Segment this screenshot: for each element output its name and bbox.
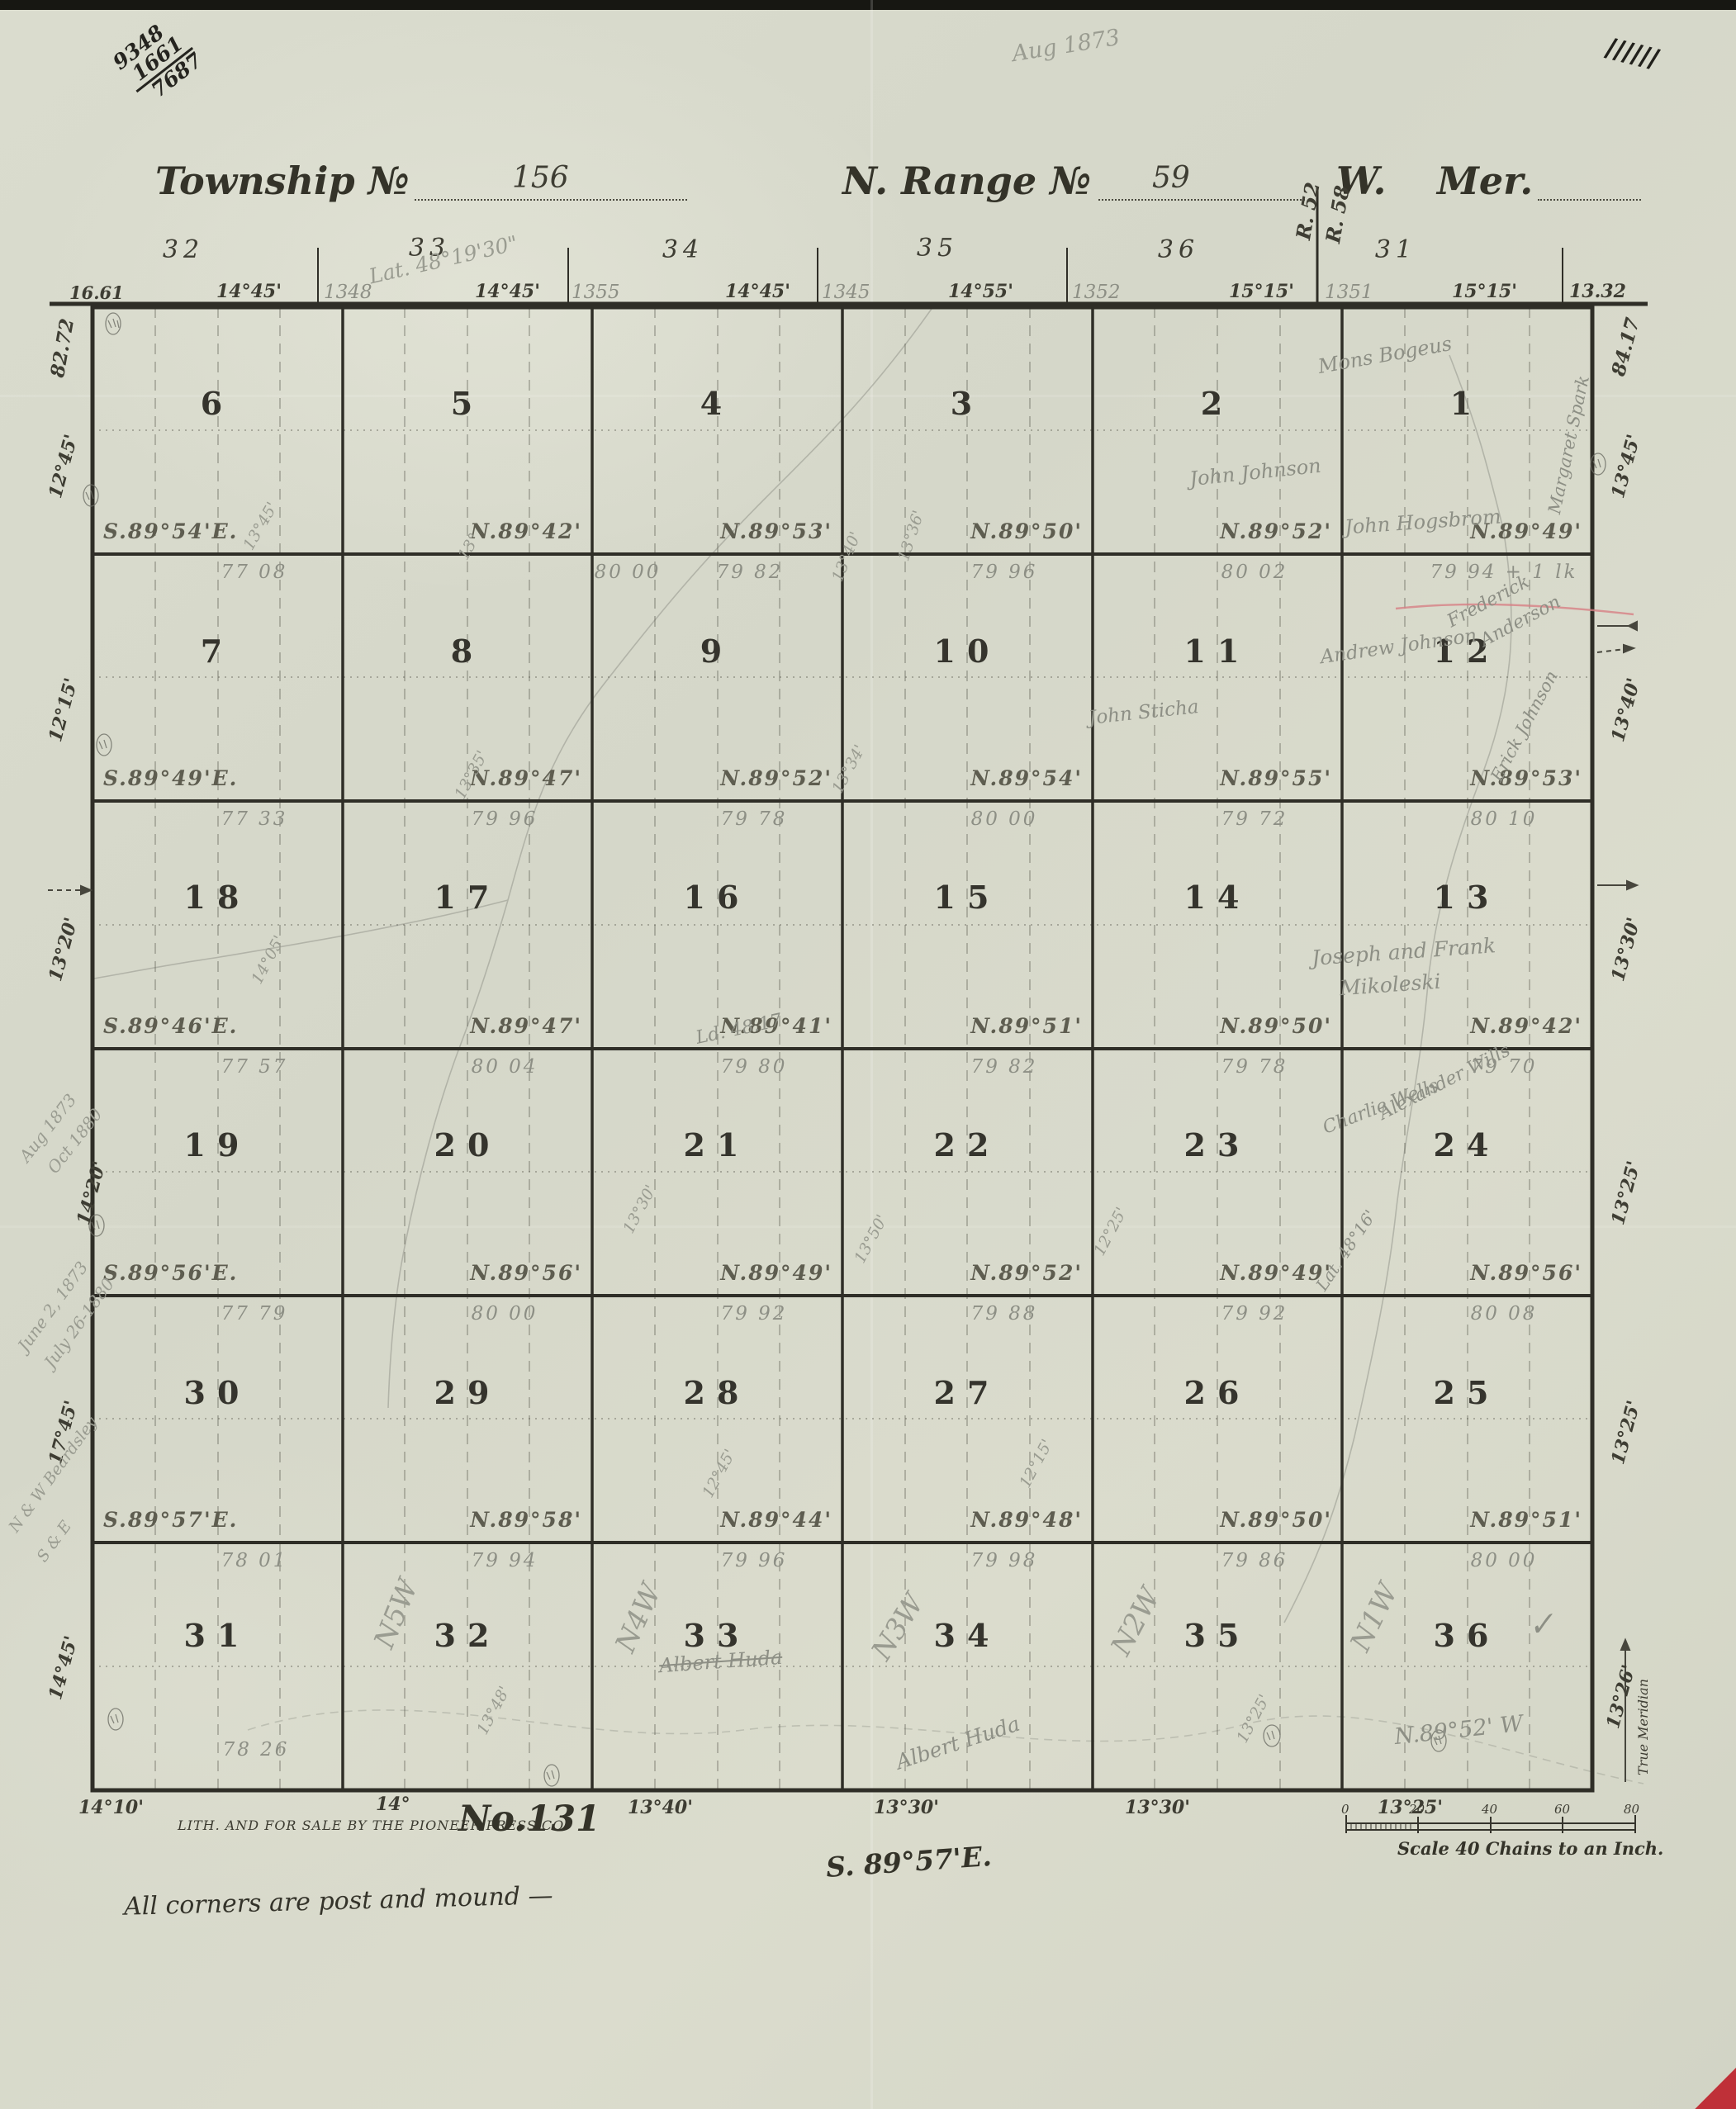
section-number: 35 (1184, 1620, 1251, 1652)
section-number: 3 (951, 388, 984, 419)
line-chains: 80 00 (971, 810, 1038, 829)
line-bearing: N.89°52' (970, 1263, 1083, 1283)
section-number: 20 (434, 1130, 501, 1161)
line-bearing: N.89°47' (470, 768, 582, 789)
north-bearing: 14°45' (216, 282, 282, 301)
north-chain-note: 1352 (1072, 283, 1121, 302)
section-number: 32 (434, 1620, 501, 1652)
section-number: 14 (1184, 882, 1251, 913)
line-bearing: N.89°48' (970, 1509, 1083, 1530)
line-chains: 79 80 (721, 1058, 788, 1077)
section-number: 33 (684, 1620, 751, 1652)
section-number: 26 (1184, 1377, 1251, 1409)
line-chains: 80 02 (1221, 563, 1288, 582)
north-bearing: 14°55' (948, 282, 1013, 301)
line-bearing: N.89°51' (1470, 1509, 1582, 1530)
line-chains: 79 72 (1221, 810, 1288, 829)
line-chains: 79 92 (1221, 1305, 1288, 1324)
line-bearing: S.89°46'E. (103, 1016, 238, 1036)
section-number: 15 (934, 882, 1001, 913)
section-number: 19 (184, 1130, 251, 1161)
title-range-no: 59 (1152, 164, 1190, 193)
north-bearing: 14°45' (725, 282, 790, 301)
line-bearing: N.89°47' (470, 1016, 582, 1036)
section-number: 31 (184, 1620, 251, 1652)
line-chains: 80 00 (595, 563, 662, 582)
section-number: 24 (1434, 1130, 1501, 1161)
scale-tick: 60 (1554, 1803, 1570, 1816)
north-section-35: 35 (917, 236, 958, 261)
south-angle: 14° (376, 1795, 410, 1813)
line-bearing: S.89°57'E. (103, 1509, 238, 1530)
title-range-label: N. Range № (842, 162, 1091, 200)
section-number: 36 (1434, 1620, 1501, 1652)
section-number: 11 (1184, 636, 1251, 667)
line-bearing: N.89°42' (1470, 1016, 1582, 1036)
title-township-no: 156 (512, 164, 569, 193)
section-number: 8 (451, 636, 484, 667)
north-dist-east: 13.32 (1569, 282, 1626, 301)
section-number: 18 (184, 882, 251, 913)
line-chains: 79 78 (1221, 1058, 1288, 1077)
line-bearing: S.89°56'E. (103, 1263, 238, 1283)
line-chains: 80 04 (472, 1058, 538, 1077)
north-bearing: 14°45' (475, 282, 540, 301)
dotted-fill (1538, 198, 1641, 201)
section-number: 22 (934, 1130, 1001, 1161)
line-chains: 78 01 (221, 1552, 288, 1571)
line-chains: 79 98 (971, 1552, 1038, 1571)
dotted-fill (415, 198, 687, 201)
scale-tick: 80 (1624, 1803, 1639, 1816)
check-mark: ✓ (1526, 1607, 1557, 1642)
north-chain-note: 1351 (1325, 283, 1373, 302)
section-number: 13 (1434, 882, 1501, 913)
scale-caption: Scale 40 Chains to an Inch. (1397, 1840, 1663, 1857)
line-chains: 79 92 (721, 1305, 788, 1324)
section-number: 25 (1434, 1377, 1501, 1409)
north-section-36: 36 (1158, 238, 1199, 263)
line-bearing: N.89°56' (470, 1263, 582, 1283)
line-bearing: N.89°58' (470, 1509, 582, 1530)
line-bearing: S.89°49'E. (103, 768, 238, 789)
line-bearing: N.89°53' (720, 521, 832, 542)
north-section-31: 31 (1375, 238, 1416, 263)
south-angle: 14°10' (78, 1799, 144, 1817)
line-chains: 79 88 (971, 1305, 1038, 1324)
line-bearing: N.89°55' (1220, 768, 1332, 789)
line-bearing: N.89°52' (720, 768, 832, 789)
line-bearing: N.89°52' (1220, 521, 1332, 542)
scale-tick: 0 (1341, 1803, 1349, 1816)
line-bearing: N.89°44' (720, 1509, 832, 1530)
line-chains: 77 79 (221, 1305, 288, 1324)
true-meridian-label: True Meridian (1637, 1679, 1650, 1775)
line-chains: 79 96 (472, 810, 538, 829)
line-bearing: N.89°50' (1220, 1509, 1332, 1530)
dotted-fill (1098, 198, 1305, 201)
south-angle: 13°40' (628, 1799, 693, 1817)
line-chains: 79 82 (971, 1058, 1038, 1077)
north-chain-note: 1345 (822, 283, 870, 302)
section-number: 5 (451, 388, 484, 419)
north-chain-note: 1355 (572, 283, 620, 302)
line-bearing: N.89°49' (720, 1263, 832, 1283)
line-chains: 80 00 (1471, 1552, 1538, 1571)
line-bearing: N.89°50' (970, 521, 1083, 542)
line-bearing: N.89°51' (970, 1016, 1083, 1036)
section-number: 34 (934, 1620, 1001, 1652)
line-chains: 79 94 + 1 lk (1430, 563, 1578, 582)
line-chains: 79 78 (721, 810, 788, 829)
section-number: 28 (684, 1377, 751, 1409)
line-bearing: N.89°54' (970, 768, 1083, 789)
section-number: 29 (434, 1377, 501, 1409)
line-bearing: N.89°53' (1470, 768, 1582, 789)
north-bearing: 15°15' (1452, 282, 1517, 301)
section-number: 1 (1450, 388, 1483, 419)
north-section-32: 32 (163, 238, 204, 263)
north-section-34: 34 (662, 238, 704, 263)
scale-tick: 20 (1409, 1803, 1425, 1816)
line-bearing: N.89°56' (1470, 1263, 1582, 1283)
line-bearing: N.89°42' (470, 521, 582, 542)
section-number: 7 (201, 636, 234, 667)
section-number: 30 (184, 1377, 251, 1409)
south-angle: 13°30' (874, 1799, 939, 1817)
section-number: 4 (700, 388, 733, 419)
plate-number: No.131 (458, 1802, 600, 1837)
line-chains: 79 96 (721, 1552, 788, 1571)
line-chains: 80 08 (1471, 1305, 1538, 1324)
line-bearing: N.89°50' (1220, 1016, 1332, 1036)
line-chains: 79 96 (971, 563, 1038, 582)
title-township-label: Township № (155, 162, 410, 200)
title-meridian: Mer. (1437, 162, 1533, 200)
line-chains: 79 86 (1221, 1552, 1288, 1571)
line-chains: 77 33 (221, 810, 288, 829)
line-bearing: S.89°54'E. (103, 521, 238, 542)
line-chains: 77 08 (221, 563, 288, 582)
line-chains: 79 94 (472, 1552, 538, 1571)
north-dist-west: 16.61 (69, 284, 124, 301)
section-number: 2 (1201, 388, 1234, 419)
section-number: 17 (434, 882, 501, 913)
line-chains: 77 57 (221, 1058, 288, 1077)
section-number: 10 (934, 636, 1001, 667)
south-angle: 13°30' (1125, 1799, 1190, 1817)
section-number: 23 (1184, 1130, 1251, 1161)
section-number: 6 (201, 388, 234, 419)
north-bearing: 15°15' (1229, 282, 1294, 301)
section-number: 21 (684, 1130, 751, 1161)
south-line-chains: 78 26 (223, 1741, 290, 1760)
section-number: 9 (700, 636, 733, 667)
section-number: 16 (684, 882, 751, 913)
plat-map-sheet: 9348 1661 7687 Aug 1873 ////// Township … (0, 0, 1736, 2109)
section-number: 27 (934, 1377, 1001, 1409)
north-chain-note: 1348 (324, 283, 372, 302)
line-chains: 80 00 (472, 1305, 538, 1324)
line-chains: 80 10 (1471, 810, 1538, 829)
scale-tick: 40 (1482, 1803, 1497, 1816)
line-chains: 79 82 (717, 563, 784, 582)
